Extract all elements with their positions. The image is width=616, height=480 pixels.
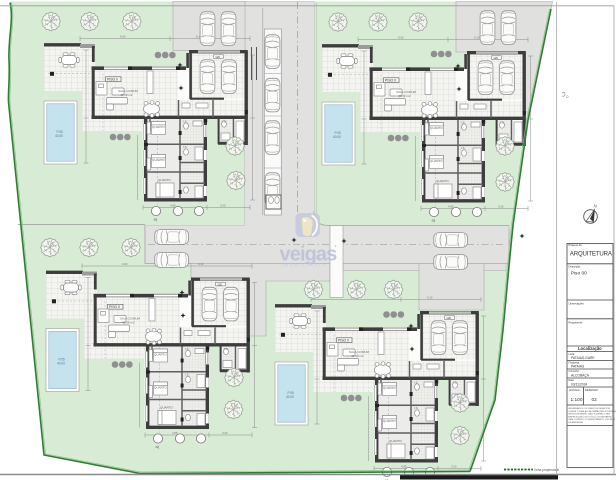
svg-text:Projecto de:: Projecto de: [569, 243, 583, 247]
svg-text:PATAIAS: PATAIAS [571, 365, 585, 369]
svg-text:Descrição:: Descrição: [569, 265, 582, 269]
svg-text:Piso 00: Piso 00 [571, 270, 587, 276]
svg-text:ARQUITETURA: ARQUITETURA [570, 251, 613, 258]
svg-text:IMOBILIÁRIA: IMOBILIÁRIA [282, 261, 327, 267]
svg-text:ESCALA:: ESCALA: [570, 388, 581, 392]
svg-text:1:100: 1:100 [571, 397, 583, 403]
svg-text:REPRODUZIDO NO TODO, OU EM PAR: REPRODUZIDO NO TODO, OU EM PARTE, [569, 415, 613, 418]
svg-text:NESTE DESENHO, NÃO PODENDO SER: NESTE DESENHO, NÃO PODENDO SER [569, 413, 611, 416]
svg-text:PATAIAS-GARE: PATAIAS-GARE [571, 356, 595, 360]
svg-text:Requerente:: Requerente: [569, 320, 584, 324]
svg-text:DESENHO:: DESENHO: [585, 388, 599, 392]
svg-text:Observações:: Observações: [569, 302, 585, 306]
svg-text:linha propriedade: linha propriedade [535, 468, 560, 472]
svg-text:RESERVADOS OS DIREITOS DE AUTO: RESERVADOS OS DIREITOS DE AUTOR [569, 407, 611, 410]
svg-text:SEM O PRÉVIO CONSENTIMENTO, ES: SEM O PRÉVIO CONSENTIMENTO, ESCRITO [569, 418, 616, 421]
svg-text:03/11/2024: 03/11/2024 [571, 382, 587, 386]
svg-text:02: 02 [592, 397, 598, 403]
svg-text:SOBRE TODAS AS INFORMAÇÕES E D: SOBRE TODAS AS INFORMAÇÕES E DESENHOS [569, 410, 616, 413]
svg-text:ALCOBAÇA: ALCOBAÇA [571, 373, 590, 377]
svg-text:Localização: Localização [578, 346, 602, 351]
svg-text:DA EMPRESA.: DA EMPRESA. [569, 421, 584, 424]
